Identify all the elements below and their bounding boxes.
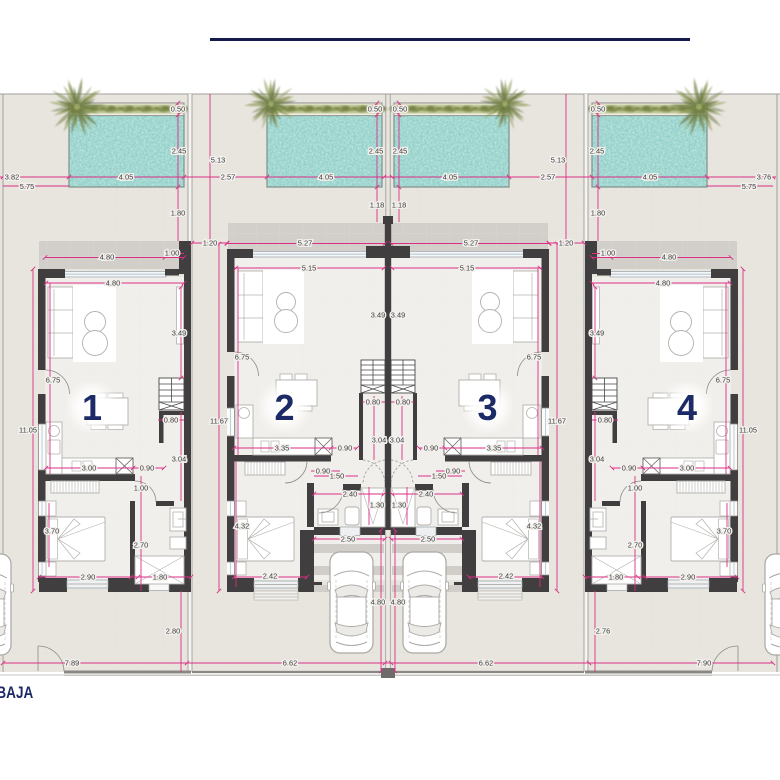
svg-text:4.80: 4.80 [100, 253, 114, 262]
svg-text:6.75: 6.75 [527, 353, 541, 362]
svg-text:5.13: 5.13 [211, 156, 225, 165]
svg-text:0.50: 0.50 [171, 105, 185, 114]
svg-text:3.04: 3.04 [172, 455, 186, 464]
svg-text:6.75: 6.75 [235, 353, 249, 362]
svg-text:2.45: 2.45 [172, 147, 186, 156]
svg-text:2.42: 2.42 [263, 572, 277, 581]
svg-text:2.70: 2.70 [628, 541, 642, 550]
svg-text:2.57: 2.57 [221, 173, 235, 182]
svg-text:1.50: 1.50 [432, 472, 446, 481]
svg-text:2: 2 [274, 387, 294, 428]
svg-text:0.50: 0.50 [393, 105, 407, 114]
svg-text:1.80: 1.80 [609, 573, 623, 582]
svg-text:3.00: 3.00 [680, 464, 694, 473]
svg-text:4.05: 4.05 [443, 173, 457, 182]
svg-text:3.04: 3.04 [390, 436, 404, 445]
svg-text:2.45: 2.45 [590, 147, 604, 156]
svg-text:4.80: 4.80 [391, 598, 405, 607]
svg-text:6.62: 6.62 [283, 659, 297, 668]
svg-text:0.80: 0.80 [598, 416, 612, 425]
svg-text:7.89: 7.89 [65, 659, 79, 668]
svg-text:2.80: 2.80 [166, 627, 180, 636]
svg-text:0.90: 0.90 [140, 464, 154, 473]
svg-text:3.49: 3.49 [590, 329, 604, 338]
svg-text:2.40: 2.40 [343, 490, 357, 499]
svg-text:0.90: 0.90 [316, 467, 330, 476]
svg-text:11.67: 11.67 [548, 417, 566, 426]
svg-text:3.82: 3.82 [5, 173, 19, 182]
svg-text:0.50: 0.50 [591, 105, 605, 114]
svg-text:1.00: 1.00 [601, 249, 615, 258]
svg-text:4.80: 4.80 [106, 279, 120, 288]
svg-text:4.32: 4.32 [235, 522, 249, 531]
svg-text:5.75: 5.75 [20, 182, 34, 191]
svg-text:2.45: 2.45 [393, 147, 407, 156]
svg-text:0.90: 0.90 [338, 444, 352, 453]
svg-text:1.80: 1.80 [591, 209, 605, 218]
svg-text:4.05: 4.05 [119, 173, 133, 182]
svg-text:1.18: 1.18 [370, 201, 384, 210]
svg-text:0.90: 0.90 [446, 467, 460, 476]
svg-text:2.90: 2.90 [81, 573, 95, 582]
svg-text:5.13: 5.13 [551, 156, 565, 165]
svg-text:0.80: 0.80 [366, 398, 380, 407]
svg-text:5.27: 5.27 [464, 239, 478, 248]
svg-text:4.05: 4.05 [319, 173, 333, 182]
svg-text:1.50: 1.50 [330, 472, 344, 481]
svg-text:0.90: 0.90 [622, 464, 636, 473]
svg-text:5.27: 5.27 [298, 239, 312, 248]
svg-text:1.00: 1.00 [628, 484, 642, 493]
svg-text:1.80: 1.80 [153, 573, 167, 582]
svg-text:3.35: 3.35 [275, 444, 289, 453]
svg-text:3.49: 3.49 [172, 329, 186, 338]
svg-text:1.18: 1.18 [392, 201, 406, 210]
svg-text:4.05: 4.05 [643, 173, 657, 182]
svg-text:3.49: 3.49 [391, 311, 405, 320]
svg-text:1.80: 1.80 [171, 209, 185, 218]
svg-text:3: 3 [477, 387, 497, 428]
svg-text:5.15: 5.15 [302, 264, 316, 273]
svg-text:5.15: 5.15 [460, 264, 474, 273]
svg-text:1.00: 1.00 [165, 249, 179, 258]
svg-text:3.04: 3.04 [590, 455, 604, 464]
svg-text:1: 1 [82, 387, 102, 428]
svg-text:2.90: 2.90 [681, 573, 695, 582]
svg-text:2.45: 2.45 [369, 147, 383, 156]
svg-text:1.00: 1.00 [134, 484, 148, 493]
svg-text:3.49: 3.49 [371, 311, 385, 320]
svg-text:4.80: 4.80 [656, 279, 670, 288]
svg-text:PLANTA BAJA: PLANTA BAJA [0, 684, 33, 703]
svg-text:0.50: 0.50 [368, 105, 382, 114]
svg-text:1.30: 1.30 [370, 501, 384, 510]
svg-text:4.80: 4.80 [371, 598, 385, 607]
svg-text:2.70: 2.70 [134, 541, 148, 550]
svg-text:2.57: 2.57 [541, 173, 555, 182]
svg-text:6.75: 6.75 [716, 376, 730, 385]
svg-text:11.05: 11.05 [739, 426, 757, 435]
svg-text:3.04: 3.04 [372, 436, 386, 445]
svg-text:4.80: 4.80 [662, 253, 676, 262]
svg-text:1.30: 1.30 [392, 501, 406, 510]
svg-text:5.75: 5.75 [742, 182, 756, 191]
svg-text:3.70: 3.70 [45, 527, 59, 536]
svg-text:2.42: 2.42 [499, 572, 513, 581]
svg-text:3.76: 3.76 [757, 173, 771, 182]
svg-text:6.62: 6.62 [479, 659, 493, 668]
svg-text:4: 4 [677, 387, 697, 428]
svg-text:11.05: 11.05 [19, 426, 37, 435]
svg-text:3.70: 3.70 [717, 527, 731, 536]
svg-text:1.20: 1.20 [559, 239, 573, 248]
svg-text:2.40: 2.40 [419, 490, 433, 499]
svg-text:7.90: 7.90 [697, 659, 711, 668]
svg-text:11.67: 11.67 [210, 417, 228, 426]
svg-text:2.76: 2.76 [596, 627, 610, 636]
svg-text:4.32: 4.32 [527, 522, 541, 531]
svg-text:3.35: 3.35 [487, 444, 501, 453]
svg-text:1.20: 1.20 [203, 239, 217, 248]
svg-text:0.80: 0.80 [396, 398, 410, 407]
svg-text:0.90: 0.90 [424, 444, 438, 453]
svg-text:0.80: 0.80 [164, 416, 178, 425]
svg-text:3.00: 3.00 [82, 464, 96, 473]
svg-text:2.50: 2.50 [341, 535, 355, 544]
svg-text:2.50: 2.50 [421, 535, 435, 544]
svg-text:6.75: 6.75 [46, 376, 60, 385]
